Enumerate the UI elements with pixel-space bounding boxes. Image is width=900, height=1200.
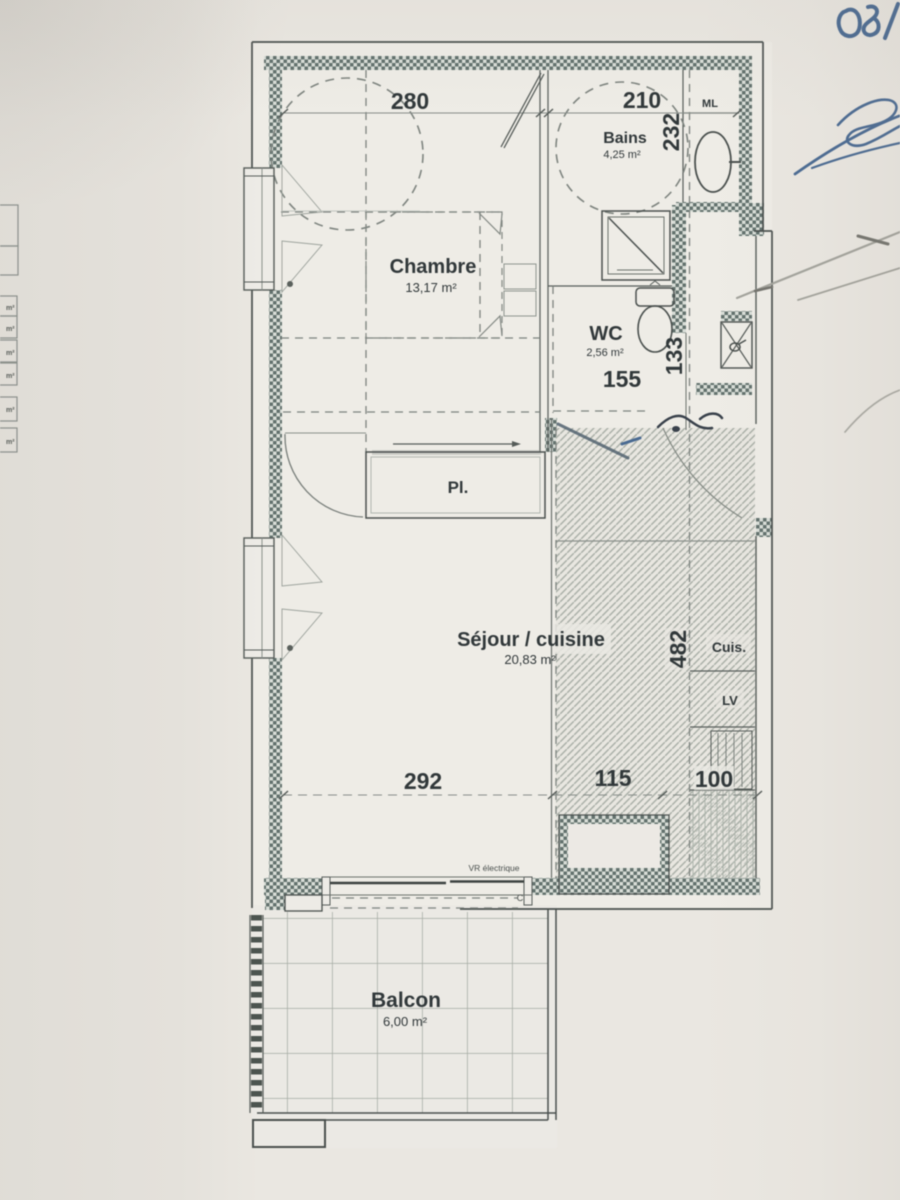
svg-text:100: 100 (695, 766, 733, 792)
svg-text:155: 155 (603, 366, 642, 392)
svg-text:280: 280 (391, 88, 429, 114)
svg-text:6,00 m²: 6,00 m² (383, 1014, 428, 1029)
svg-text:4,25 m²: 4,25 m² (603, 149, 641, 161)
svg-text:m²: m² (6, 305, 15, 312)
svg-text:Séjour / cuisine: Séjour / cuisine (457, 629, 605, 651)
svg-text:292: 292 (404, 768, 442, 794)
svg-text:Cuis.: Cuis. (712, 639, 746, 655)
svg-text:115: 115 (594, 765, 631, 791)
svg-text:C: C (517, 893, 524, 903)
svg-text:Bains: Bains (603, 130, 647, 147)
svg-text:20,83 m²: 20,83 m² (504, 652, 556, 667)
svg-text:m²: m² (6, 350, 15, 357)
svg-text:482: 482 (665, 630, 691, 668)
svg-text:210: 210 (623, 87, 661, 113)
svg-text:WC: WC (589, 323, 622, 345)
svg-text:232: 232 (658, 113, 684, 151)
svg-text:Chambre: Chambre (390, 256, 477, 278)
svg-text:2,56 m²: 2,56 m² (586, 347, 624, 359)
svg-text:Pl.: Pl. (448, 478, 469, 497)
svg-text:LV: LV (722, 693, 738, 708)
svg-text:133: 133 (661, 337, 687, 375)
svg-text:VR électrique: VR électrique (468, 863, 519, 873)
svg-text:13,17 m²: 13,17 m² (405, 280, 457, 295)
svg-text:m²: m² (6, 373, 15, 380)
svg-text:Balcon: Balcon (371, 989, 441, 1012)
svg-text:ML: ML (702, 98, 718, 110)
svg-text:m²: m² (6, 407, 15, 414)
svg-text:m²: m² (6, 326, 15, 333)
svg-text:m²: m² (6, 439, 15, 446)
